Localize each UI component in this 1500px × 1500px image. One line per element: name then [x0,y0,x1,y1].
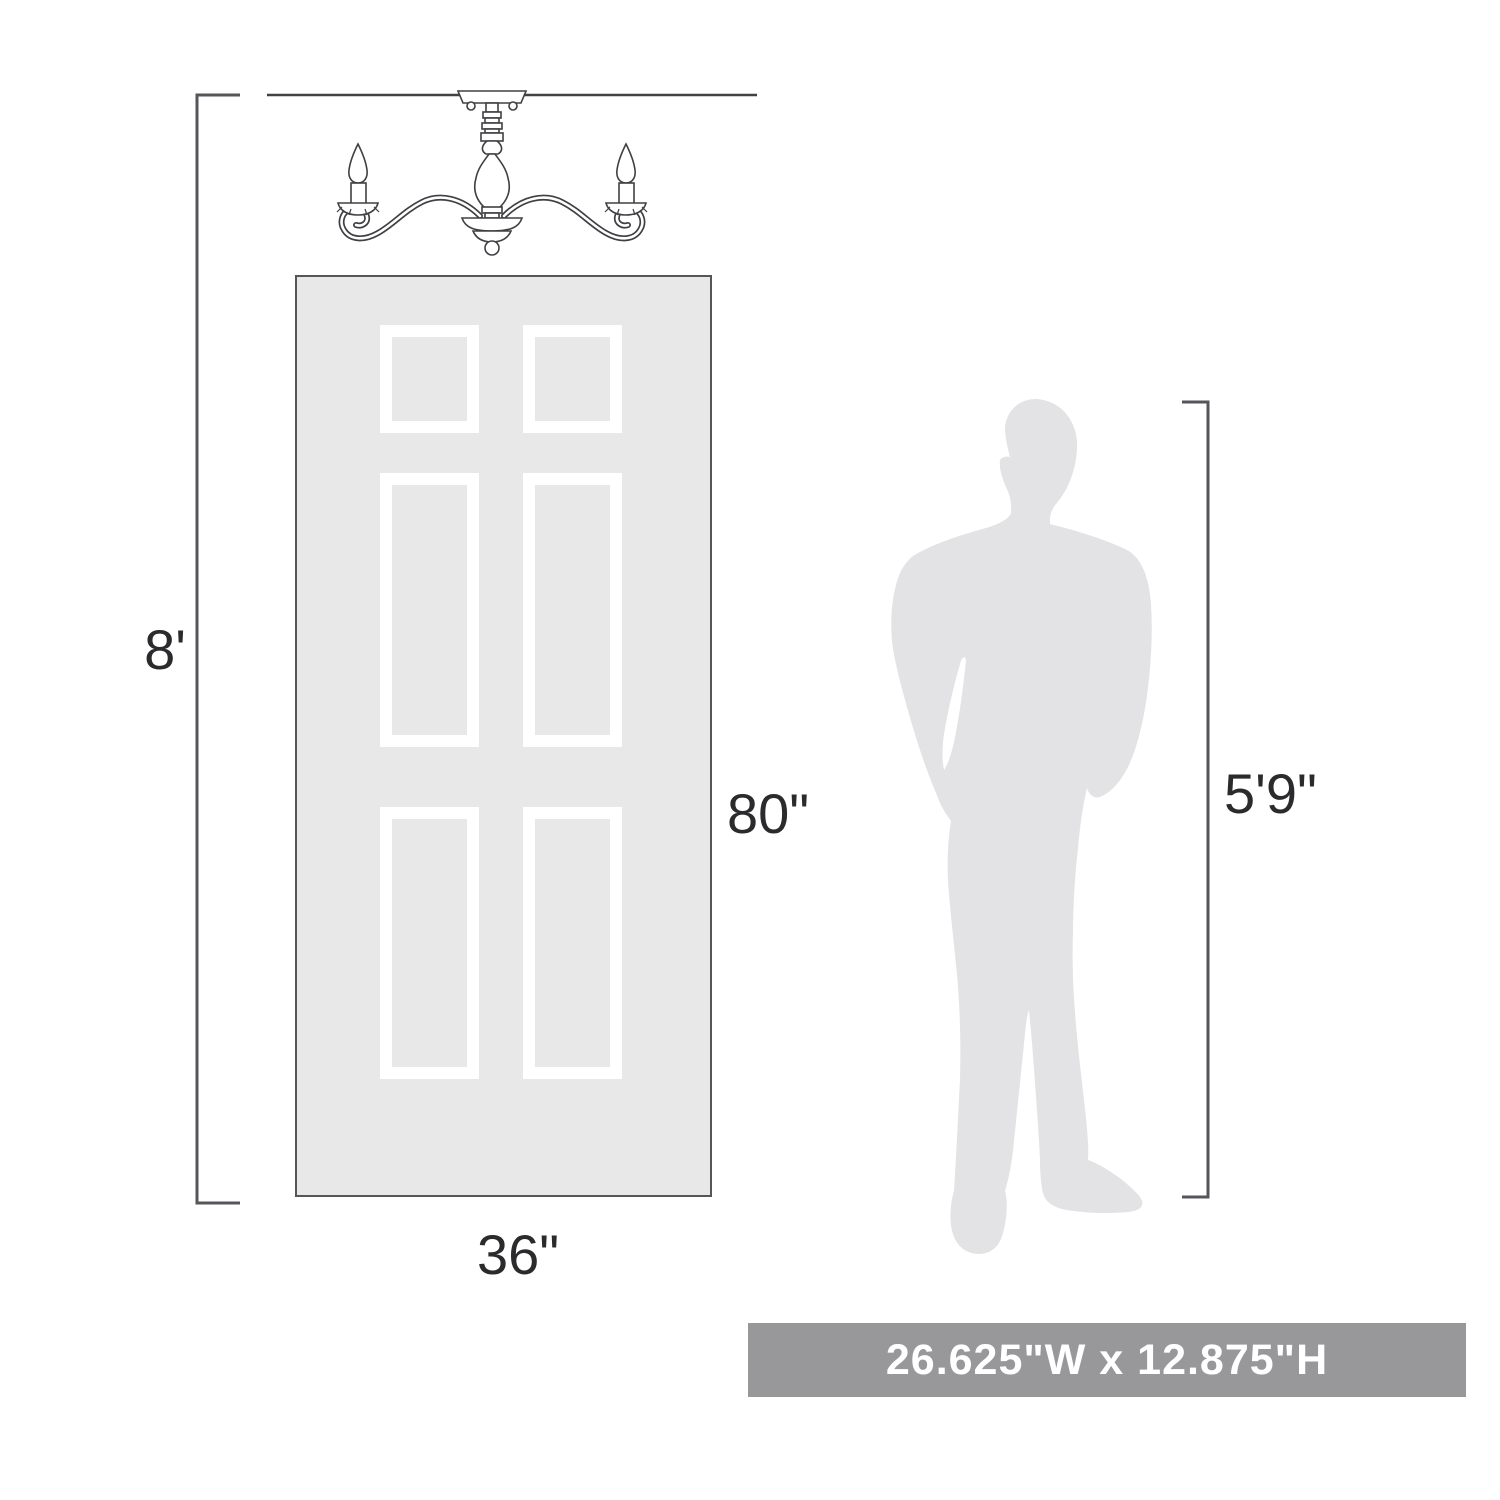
chandelier-column [475,154,510,212]
door-panel [523,807,622,1079]
door-panel [380,325,479,433]
man-silhouette-icon [891,399,1151,1254]
door-panel [523,473,622,747]
chandelier-finial [485,241,499,255]
door-width-label: 36" [477,1227,559,1283]
diagram-line-art [0,0,1500,1500]
chandelier-canopy [458,91,526,103]
chandelier-icon [337,91,647,255]
size-comparison-diagram: 8' 80" 36" 5'9" 26.625"W x 12.875"H [0,0,1500,1500]
person-height-label: 5'9" [1224,766,1317,822]
chandelier-right-candle [605,144,647,215]
door-panel [523,325,622,433]
door-panel [380,807,479,1079]
door-illustration [295,275,712,1197]
chandelier-left-candle [337,144,379,215]
product-dimensions-text: 26.625"W x 12.875"H [886,1339,1328,1382]
door-height-label: 80" [727,786,809,842]
product-dimensions-banner: 26.625"W x 12.875"H [748,1323,1466,1397]
door-panel [380,473,479,747]
ceiling-height-label: 8' [125,622,205,678]
person-height-bracket [1182,402,1208,1197]
